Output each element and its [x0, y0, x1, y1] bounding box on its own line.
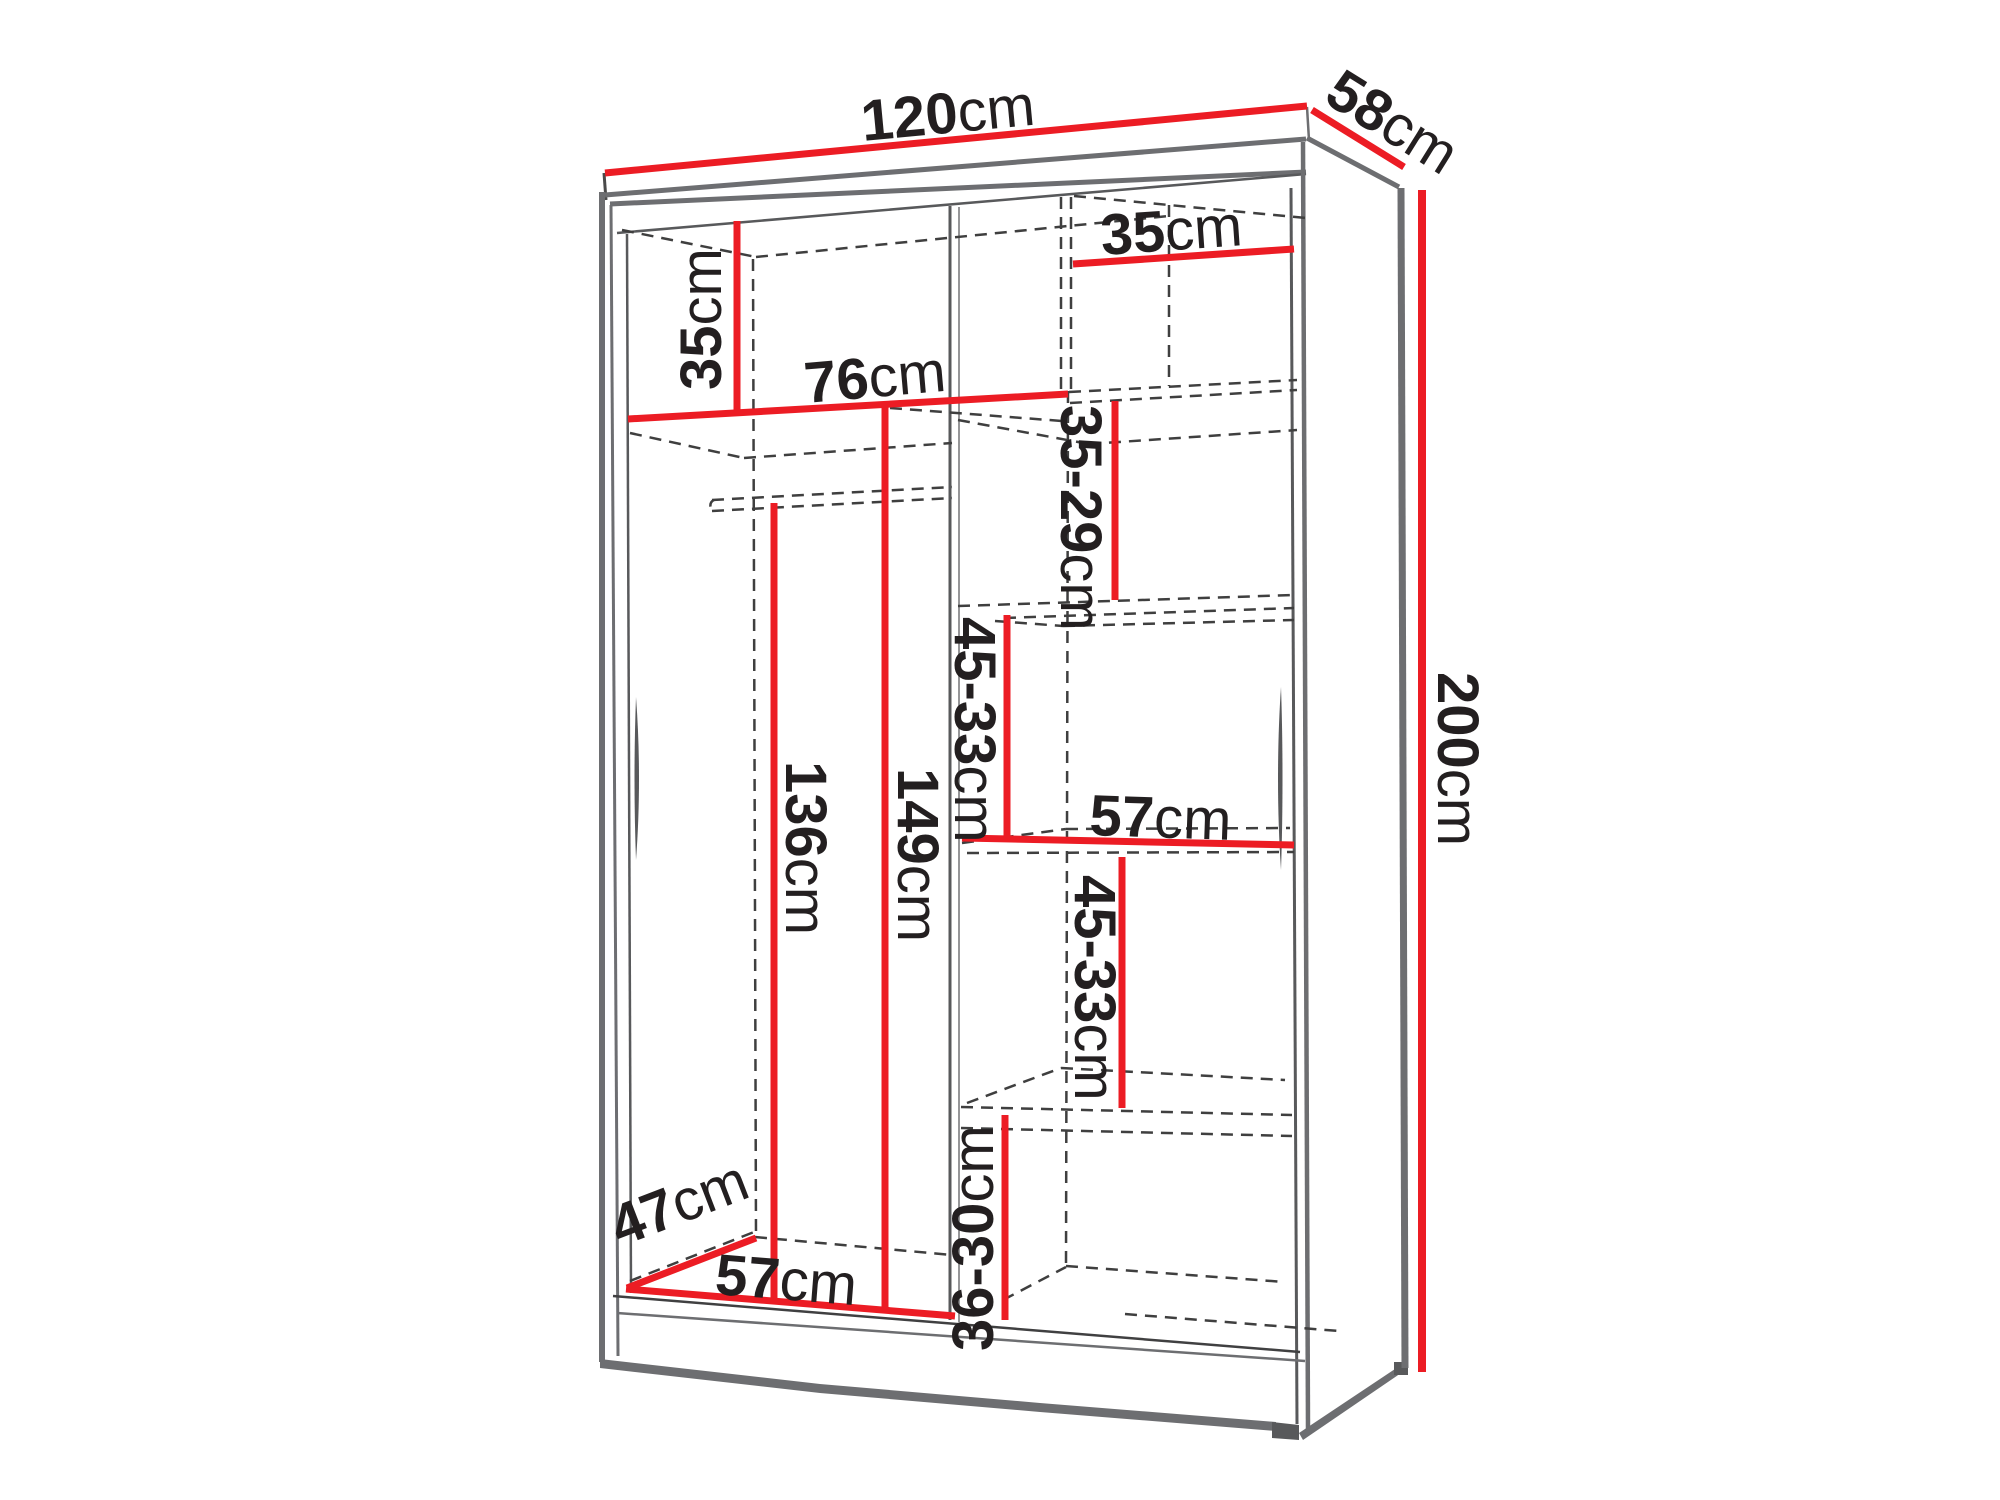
svg-text:57cm: 57cm	[713, 1242, 860, 1318]
svg-text:35cm: 35cm	[669, 248, 734, 390]
svg-text:76cm: 76cm	[801, 339, 948, 416]
svg-text:136cm: 136cm	[773, 761, 838, 935]
svg-text:45-33cm: 45-33cm	[1062, 875, 1127, 1101]
svg-text:35cm: 35cm	[1098, 193, 1244, 268]
svg-text:58cm: 58cm	[1315, 57, 1470, 187]
svg-text:45-33cm: 45-33cm	[942, 617, 1007, 843]
svg-text:35-29cm: 35-29cm	[1048, 405, 1113, 631]
svg-text:120cm: 120cm	[858, 73, 1037, 154]
svg-text:149cm: 149cm	[885, 768, 950, 942]
svg-text:57cm: 57cm	[1089, 783, 1233, 853]
svg-text:200cm: 200cm	[1425, 672, 1490, 846]
svg-text:36-30cm: 36-30cm	[941, 1125, 1006, 1351]
